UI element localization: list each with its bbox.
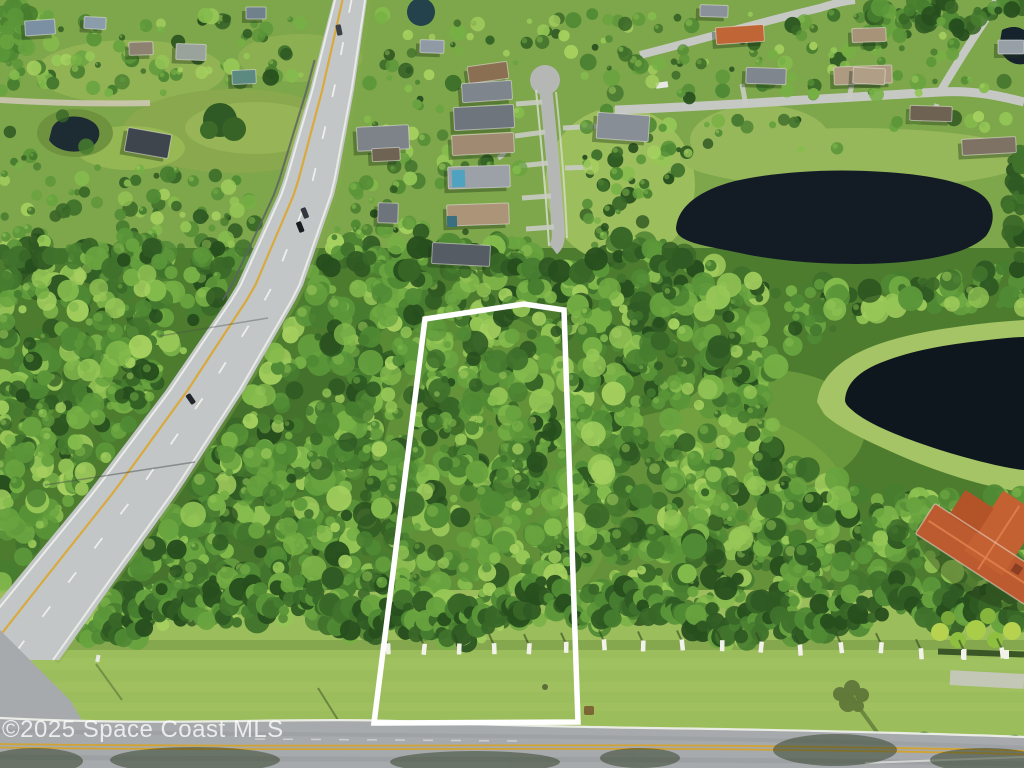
aerial-scene: [0, 0, 1024, 768]
watermark: ©2025 Space Coast MLS: [2, 716, 284, 744]
dirt-patch: [584, 706, 594, 715]
aerial-photo: ©2025 Space Coast MLS: [0, 0, 1024, 768]
dirt-lane: [0, 100, 150, 103]
